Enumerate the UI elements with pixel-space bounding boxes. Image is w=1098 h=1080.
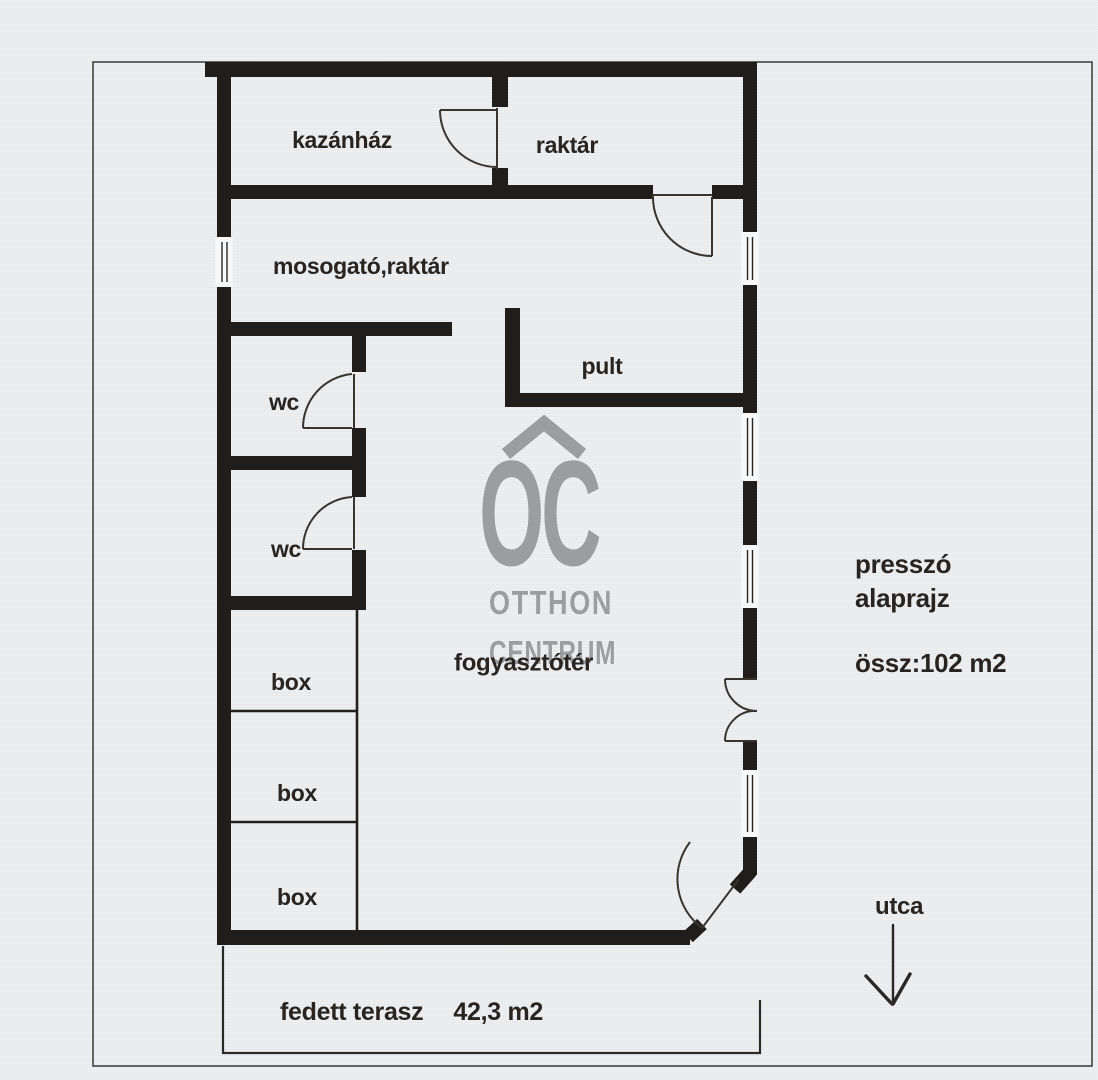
wall-segment [217, 185, 508, 199]
total-area-label: össz:102 m2 [855, 650, 1006, 677]
plan-title-line2: alaprajz [855, 585, 949, 612]
wall-segment [743, 62, 757, 232]
wall-segment [217, 930, 690, 945]
wall-segment [492, 168, 508, 199]
window-right-1 [742, 232, 759, 285]
room-label-raktar: raktár [536, 133, 598, 157]
room-label-mosogato: mosogató,raktár [273, 254, 449, 278]
wall-segment [217, 456, 366, 470]
wall-segment [217, 322, 452, 336]
wall-segment [492, 185, 653, 199]
watermark-otthon: OTTHON [489, 586, 613, 619]
plan-title-line1: presszó [855, 551, 951, 578]
wall-segment [743, 742, 757, 770]
window-left [216, 237, 233, 287]
room-label-box-1: box [271, 670, 311, 694]
room-label-wc-1: wc [269, 390, 299, 414]
door-wc-2 [303, 497, 354, 549]
door-wc-1 [303, 374, 354, 428]
wall-segment [352, 336, 366, 372]
room-label-kazanhaz: kazánház [292, 128, 392, 152]
room-label-fogyasztoter: fogyasztótér [454, 650, 593, 675]
wall-segment [505, 393, 757, 407]
wall-segment [712, 185, 757, 199]
window-right-2 [742, 413, 759, 481]
door-kazanhaz [440, 108, 497, 170]
window-right-4 [742, 770, 759, 837]
box-partitions [231, 610, 358, 931]
room-label-pult: pult [582, 354, 623, 378]
room-label-wc-2: wc [271, 537, 301, 561]
room-label-box-3: box [277, 885, 317, 909]
wall-segment [743, 481, 757, 545]
window-right-3 [742, 545, 759, 608]
wall-segment [205, 62, 757, 77]
street-label: utca [875, 894, 923, 919]
terrace-area: 42,3 m2 [453, 999, 543, 1025]
double-door-entrance [725, 679, 757, 741]
street-arrow [866, 925, 910, 1004]
door-terrace-corner [677, 842, 739, 928]
floor-plan-page: OC OTTHON CENTRUM kazánház raktár mosoga… [0, 0, 1098, 1080]
wall-segment [505, 308, 520, 407]
terrace-caption: fedett terasz 42,3 m2 [280, 999, 543, 1025]
room-label-box-2: box [277, 781, 317, 805]
door-raktar [653, 195, 712, 256]
wall-segment [743, 608, 757, 678]
wall-segment [492, 77, 508, 107]
wall-segment [217, 596, 366, 610]
watermark-monogram: OC [479, 438, 598, 588]
terrace-label: fedett terasz [280, 999, 423, 1025]
